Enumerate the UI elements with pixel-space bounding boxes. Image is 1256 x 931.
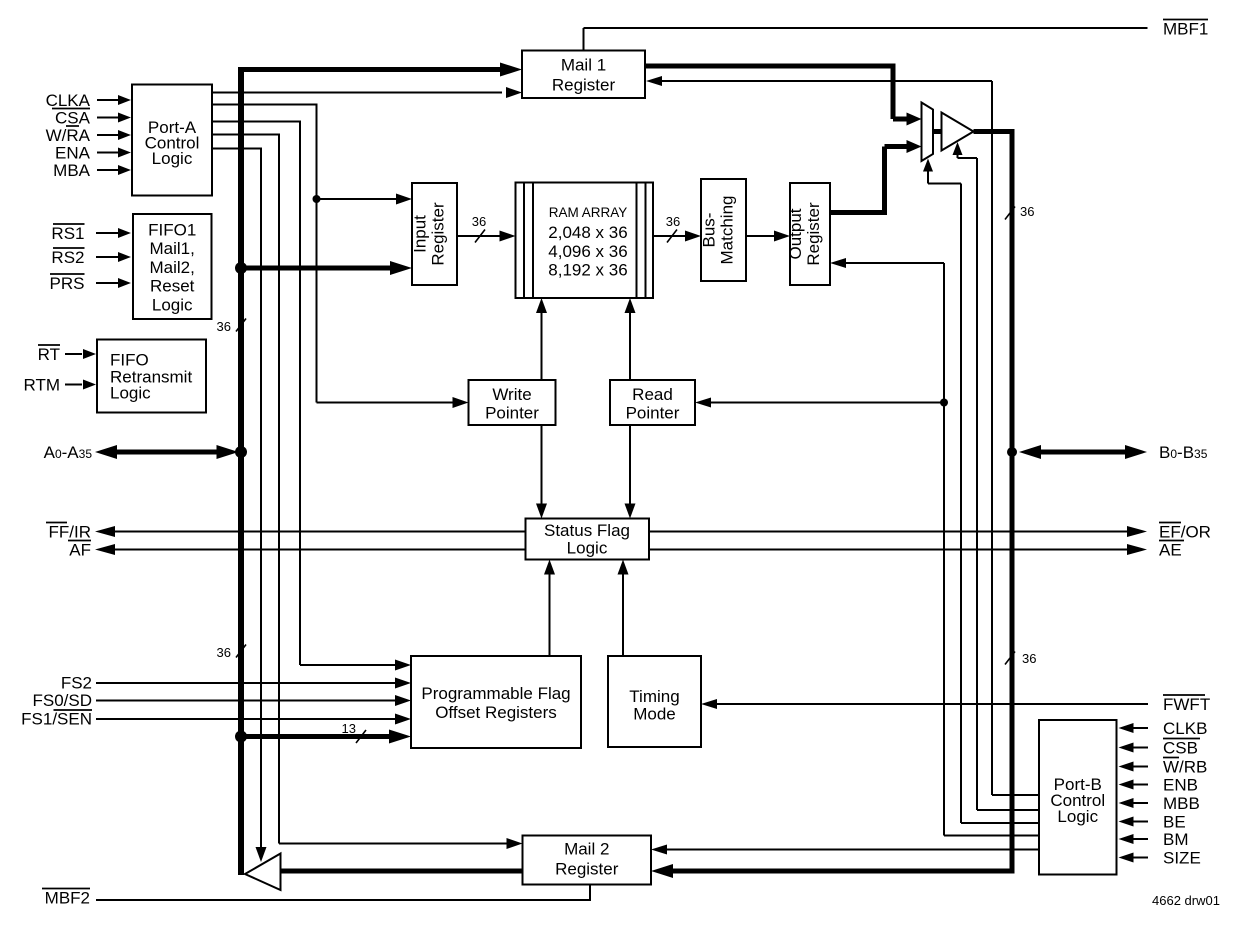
svg-text:Register: Register [555, 860, 619, 879]
svg-text:MBB: MBB [1163, 794, 1200, 813]
svg-text:FF/IR: FF/IR [49, 523, 92, 542]
svg-text:Register: Register [804, 202, 823, 266]
svg-text:8,192 x 36: 8,192 x 36 [548, 261, 627, 280]
svg-text:CSA: CSA [55, 109, 91, 128]
svg-text:AF: AF [69, 541, 91, 560]
svg-text:Status Flag: Status Flag [544, 521, 630, 540]
svg-text:MBF2: MBF2 [45, 889, 90, 908]
svg-text:FWFT: FWFT [1163, 695, 1210, 714]
svg-text:Pointer: Pointer [626, 404, 680, 423]
svg-text:Mail1,: Mail1, [150, 239, 195, 258]
svg-text:MBF1: MBF1 [1163, 20, 1208, 39]
svg-text:ENA: ENA [55, 144, 91, 163]
svg-text:Offset Registers: Offset Registers [435, 703, 557, 722]
svg-text:Logic: Logic [110, 384, 151, 403]
svg-text:Pointer: Pointer [485, 404, 539, 423]
svg-text:4662 drw01: 4662 drw01 [1152, 893, 1220, 908]
svg-text:FS0/SD: FS0/SD [32, 691, 92, 710]
svg-text:Mail 1: Mail 1 [561, 56, 606, 75]
svg-text:Mode: Mode [633, 705, 676, 724]
svg-text:RAM ARRAY: RAM ARRAY [549, 205, 628, 220]
svg-text:Logic: Logic [152, 149, 193, 168]
svg-text:Bus-: Bus- [700, 213, 719, 248]
svg-text:BM: BM [1163, 830, 1189, 849]
svg-text:Matching: Matching [718, 196, 737, 265]
svg-text:ENB: ENB [1163, 776, 1198, 795]
svg-text:Logic: Logic [152, 295, 193, 314]
svg-text:Register: Register [552, 76, 616, 95]
svg-text:Mail 2: Mail 2 [564, 840, 609, 859]
svg-text:CLKA: CLKA [46, 91, 91, 110]
svg-text:AE: AE [1159, 541, 1182, 560]
svg-text:Timing: Timing [629, 687, 679, 706]
svg-text:Read: Read [632, 385, 673, 404]
svg-text:Register: Register [429, 202, 448, 266]
svg-text:W/RA: W/RA [46, 126, 91, 145]
svg-text:W/RB: W/RB [1163, 758, 1207, 777]
svg-text:Programmable Flag: Programmable Flag [421, 684, 570, 703]
svg-text:RS1: RS1 [51, 224, 84, 243]
svg-text:36: 36 [1020, 204, 1034, 219]
svg-text:Logic: Logic [567, 539, 608, 558]
svg-text:PRS: PRS [50, 274, 85, 293]
svg-text:Mail2,: Mail2, [150, 258, 195, 277]
svg-text:RT: RT [38, 345, 60, 364]
svg-text:FIFO1: FIFO1 [148, 221, 196, 240]
svg-text:36: 36 [666, 214, 680, 229]
svg-text:13: 13 [342, 721, 356, 736]
svg-text:36: 36 [1022, 651, 1036, 666]
svg-text:FS2: FS2 [61, 674, 92, 693]
svg-text:BE: BE [1163, 813, 1186, 832]
svg-text:CLKB: CLKB [1163, 719, 1207, 738]
svg-text:4,096 x 36: 4,096 x 36 [548, 242, 627, 261]
svg-text:Reset: Reset [150, 277, 195, 296]
svg-text:MBA: MBA [53, 161, 91, 180]
svg-text:Write: Write [492, 385, 531, 404]
svg-text:RTM: RTM [23, 376, 60, 395]
svg-text:EF/OR: EF/OR [1159, 523, 1211, 542]
svg-text:36: 36 [217, 645, 231, 660]
svg-text:CSB: CSB [1163, 739, 1198, 758]
svg-text:FS1/SEN: FS1/SEN [21, 710, 92, 729]
svg-text:36: 36 [217, 319, 231, 334]
svg-text:SIZE: SIZE [1163, 849, 1201, 868]
svg-text:2,048 x 36: 2,048 x 36 [548, 223, 627, 242]
svg-text:Output: Output [786, 208, 805, 259]
svg-text:Logic: Logic [1057, 807, 1098, 826]
svg-text:RS2: RS2 [51, 248, 84, 267]
svg-text:Input: Input [411, 215, 430, 253]
svg-text:36: 36 [472, 214, 486, 229]
